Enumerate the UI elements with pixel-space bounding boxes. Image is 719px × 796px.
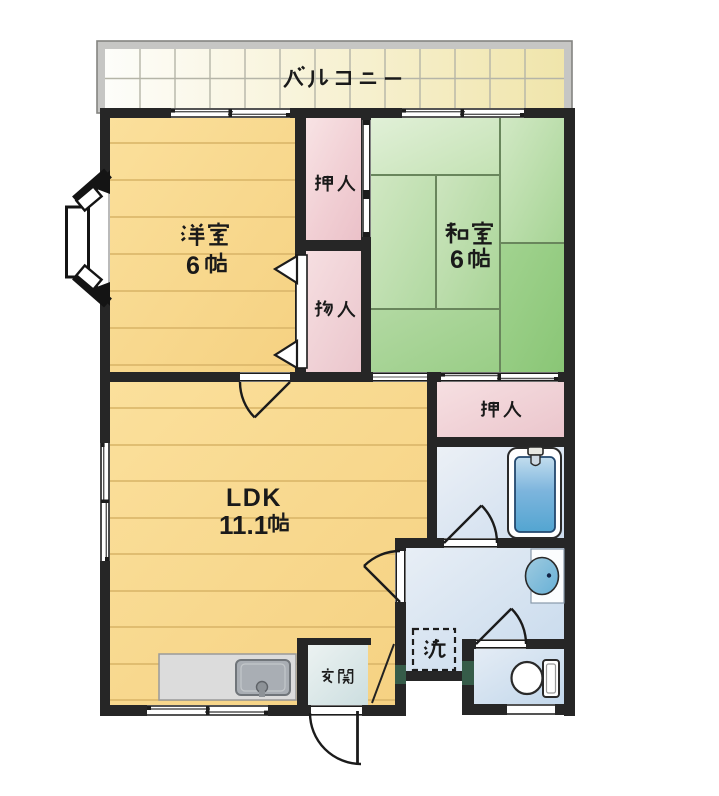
svg-text:LDK: LDK <box>226 484 282 512</box>
svg-text:11.1: 11.1 <box>219 510 268 540</box>
svg-text:6: 6 <box>186 252 200 280</box>
svg-text:6: 6 <box>450 246 464 274</box>
